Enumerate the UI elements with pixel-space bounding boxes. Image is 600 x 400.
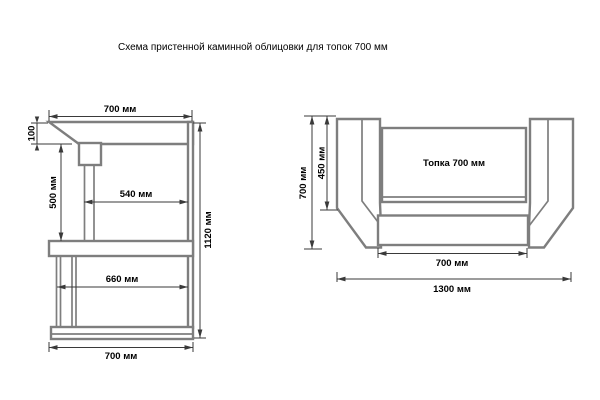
plan-dim-inner-depth: 450 мм [317,116,339,210]
plan-dim-inner-depth-label: 450 мм [317,147,328,180]
plan-view-group: Топка 700 мм 700 мм 450 мм 700 мм [298,116,573,295]
side-dim-bottom-width-label: 700 мм [105,351,138,362]
side-dim-total-height-label: 1120 мм [203,211,214,248]
plan-left-wing [337,119,381,248]
side-canopy-shape [49,122,193,144]
side-dim-portal-height: 500 мм [48,144,61,241]
plan-dim-total-width: 1300 мм [337,272,571,295]
side-dim-total-height: 1120 мм [193,123,214,338]
side-dim-portal-width-label: 540 мм [120,189,153,200]
side-back-wall [188,122,193,328]
side-base-plinth [51,327,193,339]
plan-hearth-band [378,216,528,246]
plan-dim-opening-width-label: 700 мм [436,258,469,269]
plan-firebox-label: Топка 700 мм [423,158,485,169]
side-dim-bottom-width: 700 мм [49,342,193,362]
side-dim-portal-height-label: 500 мм [48,176,59,209]
plan-dim-total-width-label: 1300 мм [433,284,471,295]
schematic-canvas: Схема пристенной каминной облицовки для … [0,0,600,400]
plan-dim-total-depth: 700 мм [298,116,336,249]
side-counter-shelf [49,241,193,256]
side-dim-portal-width: 540 мм [84,189,188,202]
plan-dim-opening-width: 700 мм [378,248,527,269]
schematic-page: Схема пристенной каминной облицовки для … [0,0,600,400]
side-view-group: 700 мм 100 500 мм 540 мм 660 мм [27,104,215,362]
side-dim-plinth-width-label: 660 мм [106,274,139,285]
side-dim-hood-drop-label: 100 [27,126,38,142]
plan-right-wing [529,119,573,248]
side-dim-top-width-label: 700 мм [104,104,137,115]
page-title: Схема пристенной каминной облицовки для … [118,41,388,53]
side-flue-box [79,143,101,165]
side-dim-top-width: 700 мм [49,104,192,121]
plan-dim-total-depth-label: 700 мм [298,167,309,200]
